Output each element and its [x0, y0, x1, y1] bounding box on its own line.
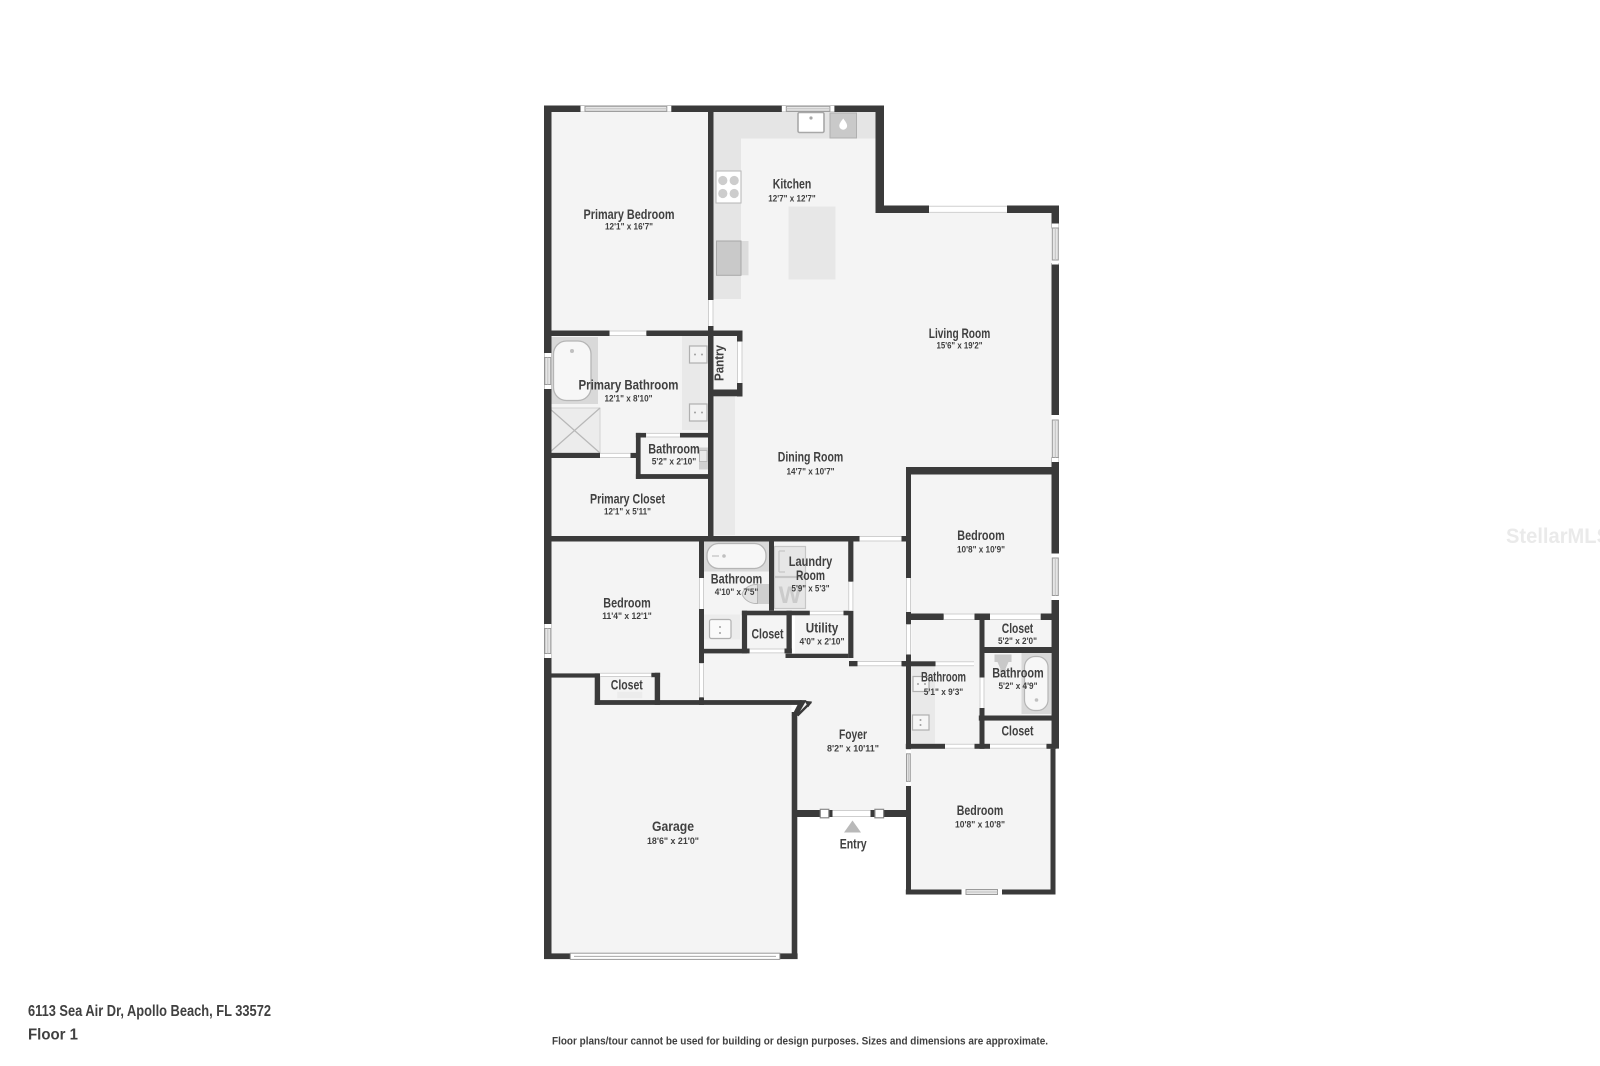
svg-text:Dining Room: Dining Room	[778, 449, 844, 465]
svg-text:Entry: Entry	[840, 835, 867, 851]
svg-text:5'1" x 9'3": 5'1" x 9'3"	[924, 687, 964, 698]
svg-text:18'6" x 21'0": 18'6" x 21'0"	[647, 836, 699, 847]
svg-text:11'4" x 12'1": 11'4" x 12'1"	[602, 611, 652, 622]
svg-text:Bathroom: Bathroom	[921, 669, 966, 685]
svg-text:Primary Closet: Primary Closet	[590, 491, 665, 507]
svg-text:Closet: Closet	[611, 677, 643, 693]
svg-text:Bathroom: Bathroom	[711, 571, 763, 587]
svg-text:Utility: Utility	[806, 620, 839, 636]
svg-text:10'8" x 10'9": 10'8" x 10'9"	[957, 545, 1005, 556]
svg-text:StellarMLS: StellarMLS	[1506, 525, 1600, 548]
svg-text:Floor 1: Floor 1	[28, 1027, 78, 1044]
svg-text:Closet: Closet	[1002, 620, 1034, 636]
svg-text:Foyer: Foyer	[839, 726, 867, 742]
svg-text:5'2" x 2'10": 5'2" x 2'10"	[652, 457, 697, 468]
svg-text:Bedroom: Bedroom	[603, 595, 651, 611]
svg-text:15'6" x 19'2": 15'6" x 19'2"	[937, 341, 983, 352]
svg-text:Room: Room	[796, 567, 825, 583]
svg-text:12'7" x 12'7": 12'7" x 12'7"	[768, 194, 816, 205]
svg-text:14'7" x 10'7": 14'7" x 10'7"	[787, 467, 835, 478]
svg-text:10'8" x 10'8": 10'8" x 10'8"	[955, 820, 1005, 831]
svg-text:Garage: Garage	[652, 818, 694, 834]
svg-text:5'2" x 4'9": 5'2" x 4'9"	[999, 681, 1038, 692]
svg-text:Closet: Closet	[752, 626, 784, 642]
svg-text:12'1" x 5'11": 12'1" x 5'11"	[604, 507, 651, 518]
svg-text:6113 Sea Air Dr, Apollo Beach,: 6113 Sea Air Dr, Apollo Beach, FL 33572	[28, 1003, 271, 1020]
svg-text:12'1" x 8'10": 12'1" x 8'10"	[605, 394, 653, 405]
svg-text:12'1" x 16'7": 12'1" x 16'7"	[605, 222, 653, 233]
svg-text:8'2" x 10'11": 8'2" x 10'11"	[827, 744, 879, 755]
svg-text:5'2" x 2'0": 5'2" x 2'0"	[998, 636, 1037, 647]
svg-text:Primary Bedroom: Primary Bedroom	[584, 206, 675, 222]
svg-text:Bathroom: Bathroom	[648, 441, 700, 457]
svg-text:Floor plans/tour cannot be use: Floor plans/tour cannot be used for buil…	[552, 1036, 1048, 1048]
svg-text:Primary Bathroom: Primary Bathroom	[579, 377, 679, 393]
svg-text:Closet: Closet	[1002, 723, 1034, 739]
svg-text:4'0" x 2'10": 4'0" x 2'10"	[800, 637, 845, 648]
svg-text:Bedroom: Bedroom	[957, 527, 1005, 543]
svg-text:Pantry: Pantry	[712, 344, 727, 381]
svg-text:Kitchen: Kitchen	[773, 176, 812, 192]
svg-text:Bathroom: Bathroom	[992, 665, 1044, 681]
svg-text:Living Room: Living Room	[929, 325, 991, 341]
svg-text:4'10" x 7'5": 4'10" x 7'5"	[715, 587, 759, 598]
svg-text:Bedroom: Bedroom	[957, 802, 1004, 818]
svg-text:5'9" x 5'3": 5'9" x 5'3"	[792, 584, 830, 595]
